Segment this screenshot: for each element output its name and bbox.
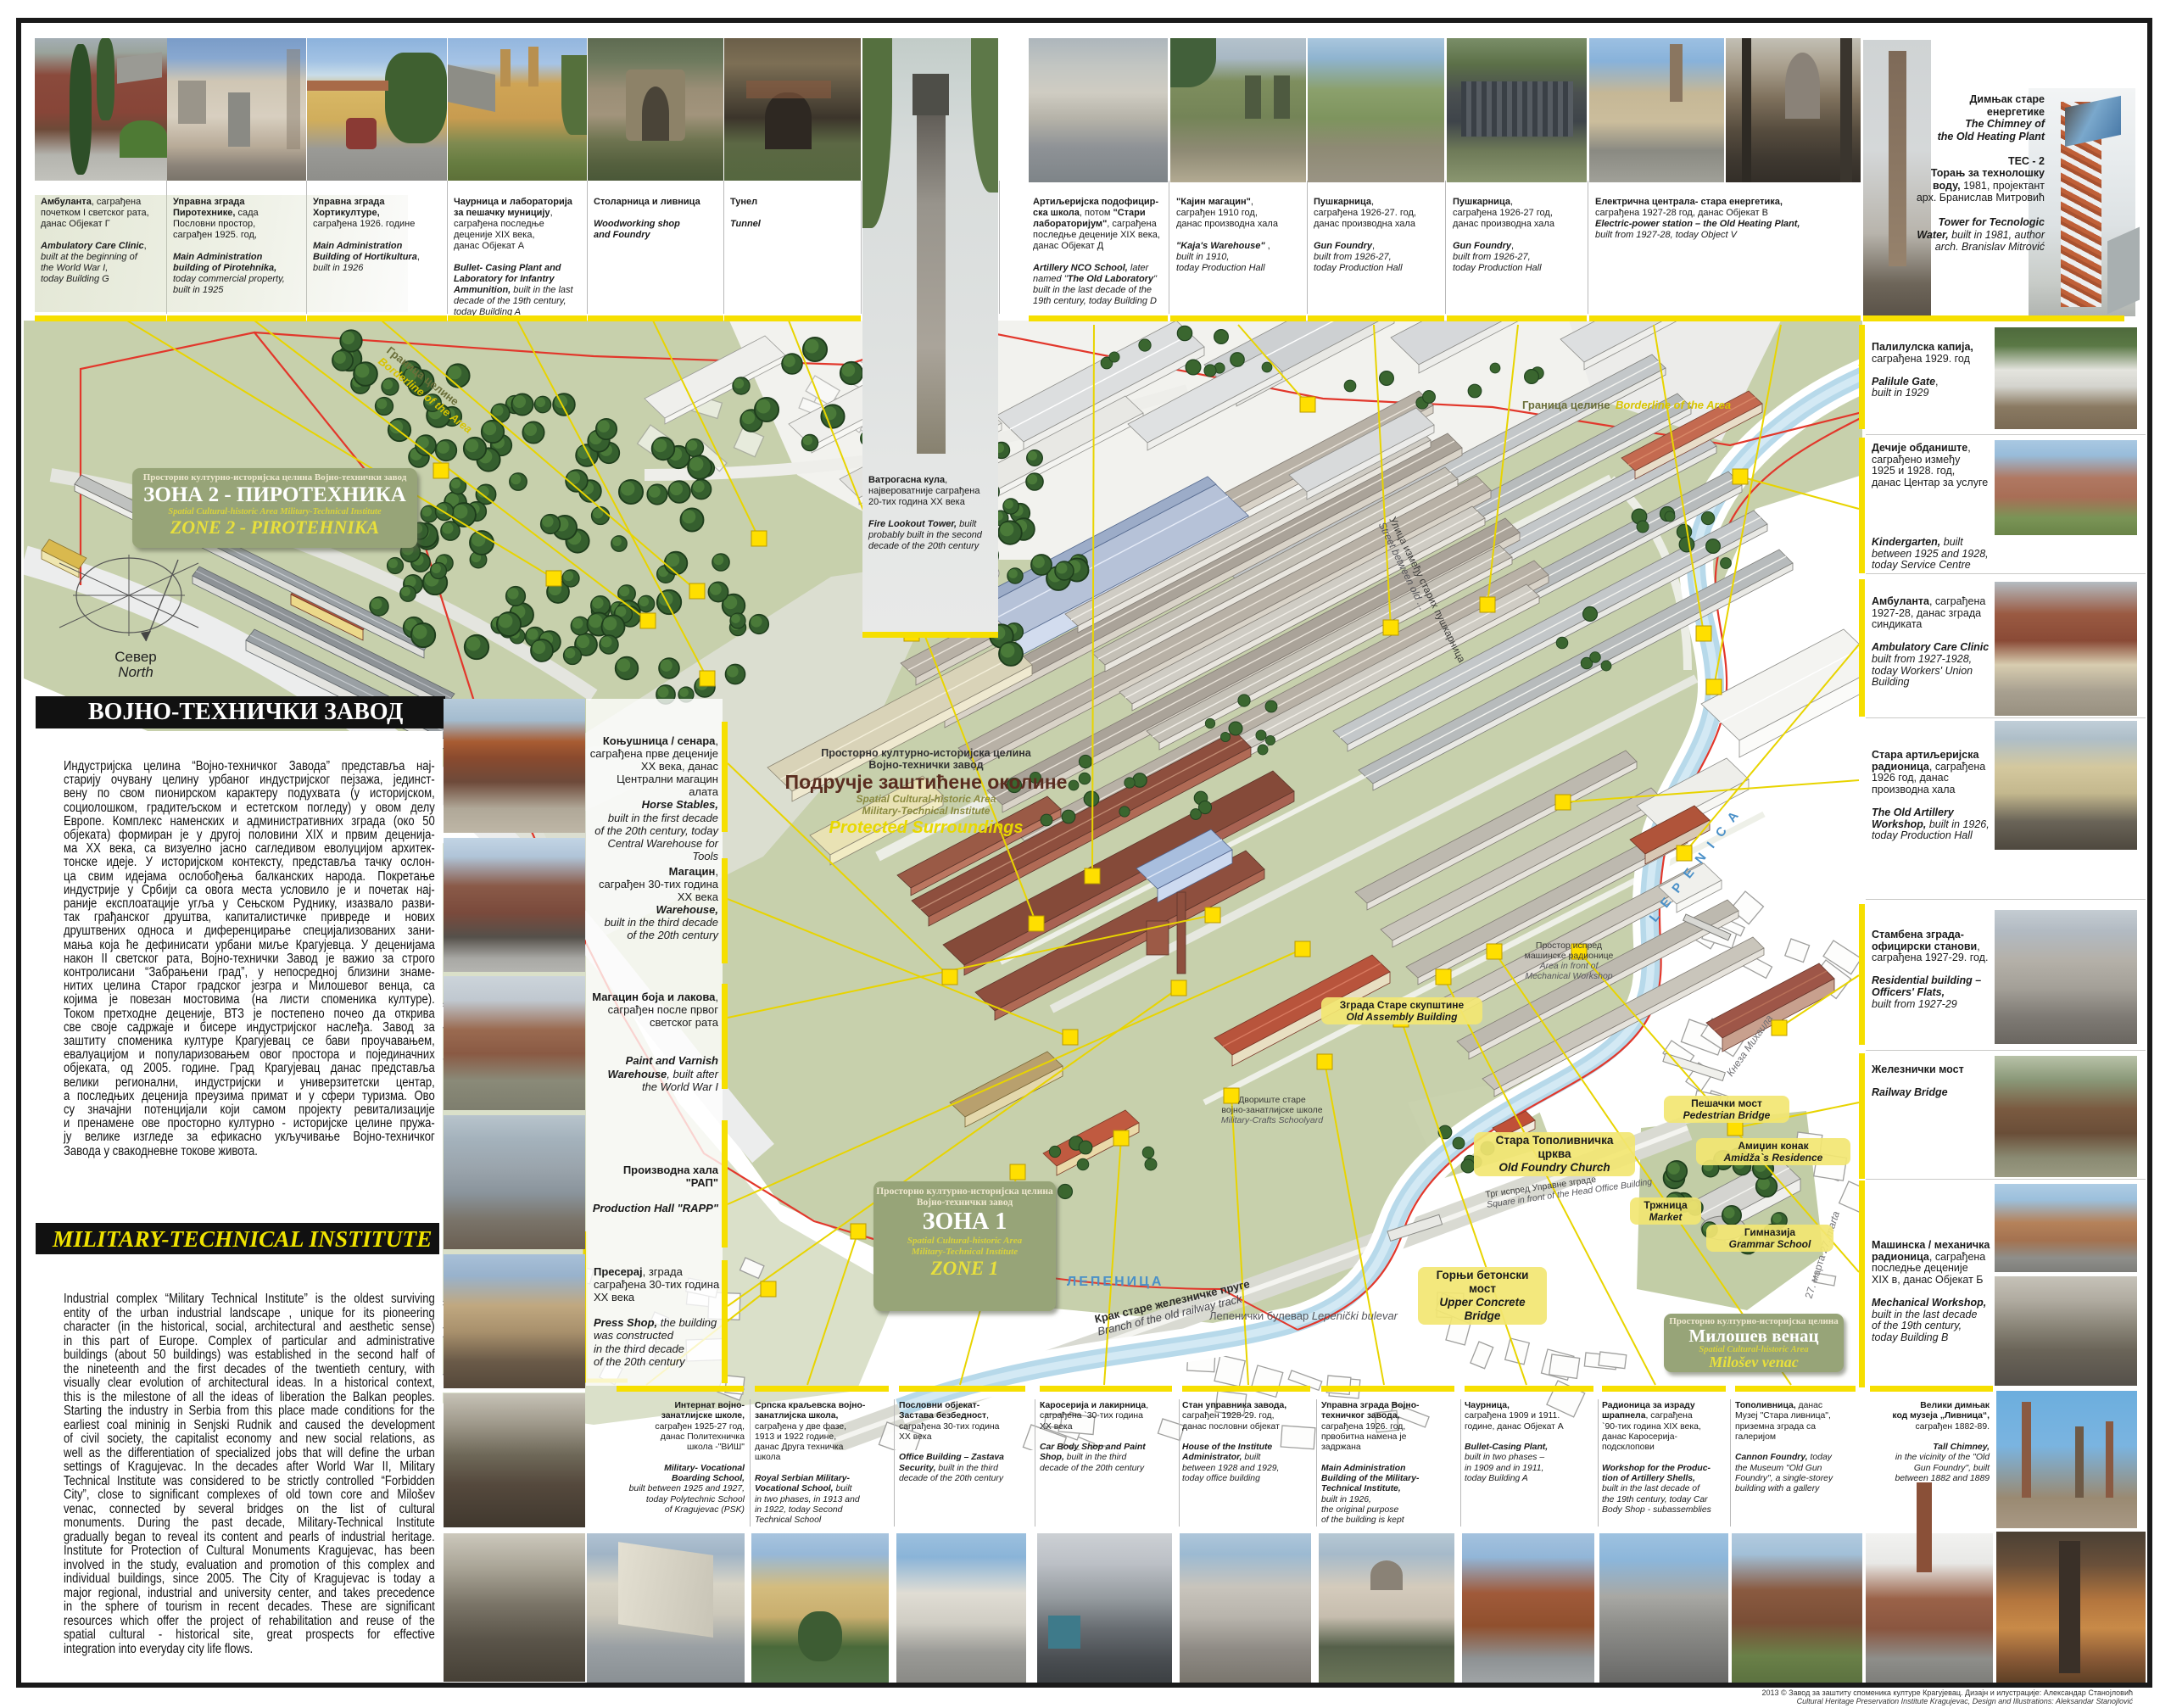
svg-text:Двориште старе: Двориште старе: [1238, 1095, 1306, 1105]
svg-text:Borderline of the Area: Borderline of the Area: [1616, 399, 1731, 411]
svg-text:војно-занатлијске школе: војно-занатлијске школе: [1221, 1105, 1322, 1115]
svg-text:Подручје заштићене околине: Подручје заштићене околине: [785, 771, 1068, 793]
svg-text:ЛЕПЕНИЦА: ЛЕПЕНИЦА: [1067, 1275, 1164, 1289]
svg-text:Military-Technical Institute: Military-Technical Institute: [862, 805, 991, 817]
svg-text:Spatial Cultural-historic Area: Spatial Cultural-historic Area: [857, 793, 996, 805]
svg-text:Лепенички булевар Lepenički: Лепенички булевар Lepenički bulevar: [1209, 1309, 1398, 1322]
svg-text:Military-Crafts Schoolyard: Military-Crafts Schoolyard: [1221, 1115, 1324, 1125]
svg-text:Protected Surroundings: Protected Surroundings: [829, 818, 1024, 837]
svg-text:машинске радионице: машинске радионице: [1525, 951, 1614, 961]
svg-text:Војно-технички завод: Војно-технички завод: [868, 759, 983, 771]
svg-text:Mechanical Workshop: Mechanical Workshop: [1525, 971, 1612, 981]
svg-text:North: North: [118, 664, 153, 680]
svg-text:Просторно културно-историјска: Просторно културно-историјска целина: [821, 747, 1032, 759]
svg-text:Север: Север: [114, 649, 156, 665]
svg-text:Простор испред: Простор испред: [1536, 941, 1602, 951]
svg-text:Area in front of: Area in front of: [1539, 961, 1599, 971]
svg-text:Граница целине: Граница целине: [1522, 399, 1610, 411]
